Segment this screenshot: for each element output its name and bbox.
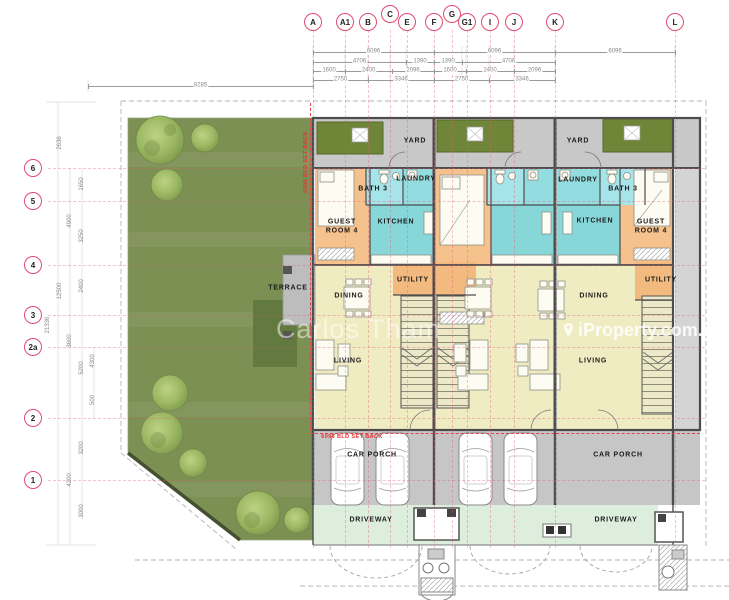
room-label: UTILITY <box>397 277 429 286</box>
dimension-text: 2096 <box>527 68 542 74</box>
dimension-text: 6096 <box>487 49 502 55</box>
dimension-tick <box>462 60 463 65</box>
grid-line-A <box>313 30 314 548</box>
dimension-tick <box>368 78 369 83</box>
room-label: DRIVEWAY <box>349 517 392 526</box>
dimension-text: 8285 <box>193 83 208 89</box>
room-label: UTILITY <box>645 277 677 286</box>
room-label: DRIVEWAY <box>594 517 637 526</box>
dimension-tick <box>406 60 407 65</box>
dimension-tick <box>555 50 556 55</box>
dimension-text: 4706 <box>352 59 367 65</box>
grid-line-2a <box>48 347 705 348</box>
grid-line-A1 <box>345 30 346 548</box>
dimension-text: 2400 <box>482 68 497 74</box>
dimension-text: 1390 <box>412 59 427 65</box>
grid-bubble-I: I <box>481 13 499 31</box>
grid-bubble-3: 3 <box>24 306 42 324</box>
room-label: GUEST ROOM 4 <box>635 218 667 236</box>
grid-line-E <box>407 30 408 548</box>
grid-bubble-L: L <box>666 13 684 31</box>
dimension-tick <box>434 69 435 74</box>
floor-plan-canvas: Carlos Tham iProperty.com.my AA1BCEFGG1I… <box>0 0 729 600</box>
grid-bubble-5: 5 <box>24 192 42 210</box>
room-label: LIVING <box>579 358 607 367</box>
grid-bubble-2a: 2a <box>24 338 42 356</box>
dimension-tick <box>313 84 314 89</box>
dimension-tick <box>434 60 435 65</box>
dimension-tick <box>434 78 435 83</box>
grid-bubble-G1: G1 <box>458 13 476 31</box>
dimension-tick <box>313 60 314 65</box>
grid-bubble-B: B <box>359 13 377 31</box>
dimension-text: 4300 <box>90 353 96 368</box>
dimension-tick <box>434 50 435 55</box>
gate-swing-arcs <box>330 546 652 578</box>
dimension-text: 500 <box>90 394 96 406</box>
grid-line-C <box>390 30 391 548</box>
dimension-tick <box>313 78 314 83</box>
agent-watermark: Carlos Tham <box>276 314 441 345</box>
grid-line-J <box>514 30 515 548</box>
room-label: KITCHEN <box>378 219 415 228</box>
grid-bubble-A: A <box>304 13 322 31</box>
dimension-text: 1600 <box>321 68 336 74</box>
room-label: YARD <box>567 138 589 147</box>
portal-watermark-text: iProperty.com.my <box>578 320 729 341</box>
dimension-text: 2096 <box>405 68 420 74</box>
dimension-tick <box>555 78 556 83</box>
room-label: TERRACE <box>268 285 307 294</box>
dimension-text: 2400 <box>361 68 376 74</box>
grid-line-4 <box>48 265 705 266</box>
grid-bubble-6: 6 <box>24 159 42 177</box>
dimension-text: 6096 <box>607 49 622 55</box>
grid-bubble-2: 2 <box>24 409 42 427</box>
dimension-text: 3346 <box>393 77 408 83</box>
dimension-text: 2750 <box>333 77 348 83</box>
dimension-text: 21336 <box>45 316 51 335</box>
grid-line-G1 <box>467 30 468 548</box>
dimension-text: 4200 <box>67 472 73 487</box>
dimension-tick <box>313 50 314 55</box>
room-label: LIVING <box>334 358 362 367</box>
dimension-tick <box>88 84 89 89</box>
room-label: GUEST ROOM 4 <box>326 218 358 236</box>
dimension-text: 2400 <box>79 278 85 293</box>
grid-line-L <box>675 30 676 548</box>
room-label: CAR PORCH <box>347 452 397 461</box>
room-label: DINING <box>334 293 363 302</box>
dimension-text: 3250 <box>79 228 85 243</box>
grid-bubble-J: J <box>505 13 523 31</box>
dimension-tick <box>489 78 490 83</box>
dimension-text: 1390 <box>440 59 455 65</box>
dimension-text: 4706 <box>501 59 516 65</box>
portal-watermark: iProperty.com.my <box>562 320 729 341</box>
dining-set <box>538 281 565 319</box>
room-label: BATH 3 <box>358 186 388 195</box>
room-label: DINING <box>579 293 608 302</box>
room-label: CAR PORCH <box>593 452 643 461</box>
dimension-tick <box>555 60 556 65</box>
dimension-tick <box>555 69 556 74</box>
grid-bubble-E: E <box>398 13 416 31</box>
dining-set <box>465 279 492 317</box>
grid-line-5 <box>48 201 705 202</box>
dimension-text: 5200 <box>79 360 85 375</box>
dimension-tick <box>466 69 467 74</box>
room-label: YARD <box>404 138 426 147</box>
setback-note: 6096 BLD SET BACK <box>321 434 383 440</box>
dimension-text: 3200 <box>79 440 85 455</box>
dimension-text: 3600 <box>67 333 73 348</box>
room-label: LAUNDRY <box>558 177 598 186</box>
room-label: KITCHEN <box>577 218 614 227</box>
grid-line-2 <box>48 418 705 419</box>
grid-bubble-C: C <box>381 5 399 23</box>
grid-bubble-1: 1 <box>24 471 42 489</box>
dimension-text: 6096 <box>366 49 381 55</box>
grid-bubble-A1: A1 <box>336 13 354 31</box>
dimension-tick <box>675 50 676 55</box>
grid-line-B <box>368 30 369 548</box>
dimension-tick <box>345 69 346 74</box>
grid-line-K <box>555 30 556 548</box>
dimension-text: 12500 <box>57 282 63 301</box>
grid-line-F <box>434 30 435 548</box>
grid-line-1 <box>48 480 705 481</box>
location-pin-icon <box>562 322 575 339</box>
room-label: LAUNDRY <box>396 176 436 185</box>
dimension-tick <box>313 69 314 74</box>
grid-line-6 <box>48 168 705 169</box>
dimension-text: 2636 <box>57 135 63 150</box>
grid-bubble-4: 4 <box>24 256 42 274</box>
dimension-tick <box>514 69 515 74</box>
setback-line-vertical <box>310 103 311 430</box>
setback-note: 6096 BLD SET BACK <box>303 131 309 193</box>
dimension-text: 3346 <box>514 77 529 83</box>
dimension-text: 1600 <box>442 68 457 74</box>
plan-graphics <box>0 0 729 600</box>
grid-bubble-K: K <box>546 13 564 31</box>
dimension-text: 2750 <box>454 77 469 83</box>
dimension-text: 1650 <box>79 176 85 191</box>
grid-bubble-F: F <box>425 13 443 31</box>
grid-line-G <box>452 30 453 548</box>
dimension-tick <box>392 69 393 74</box>
dimension-text: 4900 <box>67 213 73 228</box>
grid-line-I <box>490 30 491 548</box>
room-label: BATH 3 <box>608 186 638 195</box>
dimension-text: 3000 <box>79 503 85 518</box>
